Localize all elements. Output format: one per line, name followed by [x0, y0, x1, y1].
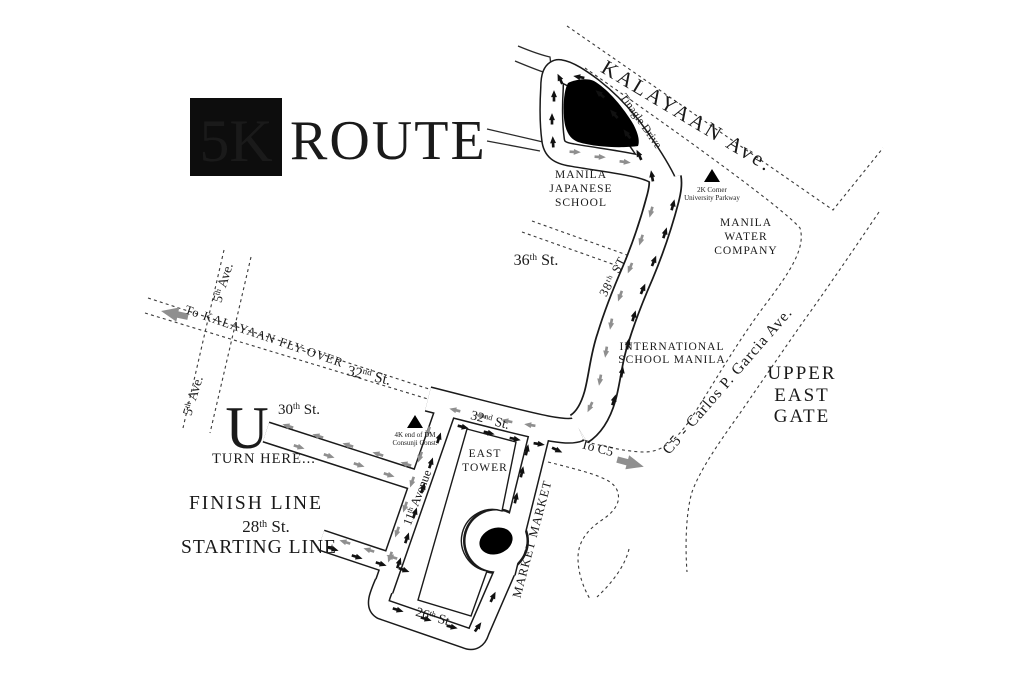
uturn-annotation: U 30th St. TURN HERE...: [212, 395, 320, 467]
svg-text:To C5: To C5: [579, 436, 615, 459]
map-canvas: 5K ROUTE KALAYAAN Ave. Tinagle Drive MAN…: [0, 0, 1024, 682]
street-label-36th: 36th St.: [514, 252, 559, 269]
title-word: ROUTE: [290, 110, 487, 172]
place-label-manila-japanese-school: MANILA JAPANESE SCHOOL: [549, 169, 612, 209]
4k-marker-icon: [407, 415, 423, 428]
svg-text:WATER: WATER: [724, 231, 767, 243]
svg-text:TURN HERE...: TURN HERE...: [212, 451, 316, 467]
route-map: 5K ROUTE KALAYAAN Ave. Tinagle Drive MAN…: [0, 0, 1024, 682]
svg-text:SCHOOL: SCHOOL: [555, 197, 607, 209]
svg-text:UPPER: UPPER: [767, 363, 836, 384]
svg-text:MANILA: MANILA: [555, 169, 607, 181]
svg-text:32nd St.: 32nd St.: [346, 362, 393, 388]
map-title: 5K ROUTE: [190, 98, 487, 176]
svg-text:GATE: GATE: [774, 406, 831, 427]
street-label-5th-ave-upper: 5th Ave.: [210, 261, 236, 304]
starting-line-label: STARTING LINE: [181, 537, 337, 558]
street-label-28th: 28th St.: [242, 517, 290, 536]
street-label-to-kalayaan-flyover: To KALAYAAN FLY-OVER: [183, 302, 345, 370]
svg-text:University Parkway: University Parkway: [684, 194, 740, 202]
svg-text:To KALAYAAN FLY-OVER: To KALAYAAN FLY-OVER: [183, 302, 345, 370]
svg-text:COMPANY: COMPANY: [714, 245, 777, 257]
svg-text:INTERNATIONAL: INTERNATIONAL: [620, 341, 725, 353]
street-label-32nd-west: 32nd St.: [346, 362, 393, 388]
svg-text:30th St.: 30th St.: [278, 401, 320, 418]
svg-text:SCHOOL MANILA: SCHOOL MANILA: [618, 354, 725, 366]
street-label-5th-ave-lower: 5th Ave.: [180, 374, 206, 417]
svg-text:5th Ave.: 5th Ave.: [210, 261, 236, 304]
return-arrow-icon: [615, 453, 645, 474]
marker-2k-label: 2K Corner University Parkway: [684, 186, 740, 202]
start-finish-annotations: FINISH LINE 28th St. STARTING LINE: [181, 493, 337, 558]
svg-text:EAST: EAST: [469, 448, 502, 460]
place-label-upper-east-gate: UPPER EAST GATE: [767, 363, 836, 427]
svg-text:4K end of DM: 4K end of DM: [394, 431, 436, 439]
road-market-access: [597, 549, 629, 597]
road-36th-a: [532, 221, 627, 255]
marker-4k-label: 4K end of DM Consunji Const.: [392, 431, 437, 447]
outbound-arrow-icon: [551, 445, 564, 455]
place-label-manila-water: MANILA WATER COMPANY: [714, 217, 777, 257]
finish-line-label: FINISH LINE: [189, 493, 323, 514]
svg-text:MANILA: MANILA: [720, 217, 772, 229]
svg-text:TOWER: TOWER: [462, 462, 508, 474]
road-to-c5-lower: [548, 462, 619, 599]
svg-text:JAPANESE: JAPANESE: [549, 183, 612, 195]
street-label-to-c5: To C5: [579, 436, 615, 459]
svg-text:EAST: EAST: [774, 385, 830, 406]
title-badge-text: 5K: [199, 108, 272, 174]
svg-text:Consunji Const.: Consunji Const.: [392, 439, 437, 447]
2k-marker-icon: [704, 169, 720, 182]
svg-text:5th Ave.: 5th Ave.: [180, 374, 206, 417]
place-label-international-school: INTERNATIONAL SCHOOL MANILA: [618, 341, 725, 366]
svg-text:2K Corner: 2K Corner: [697, 186, 727, 194]
